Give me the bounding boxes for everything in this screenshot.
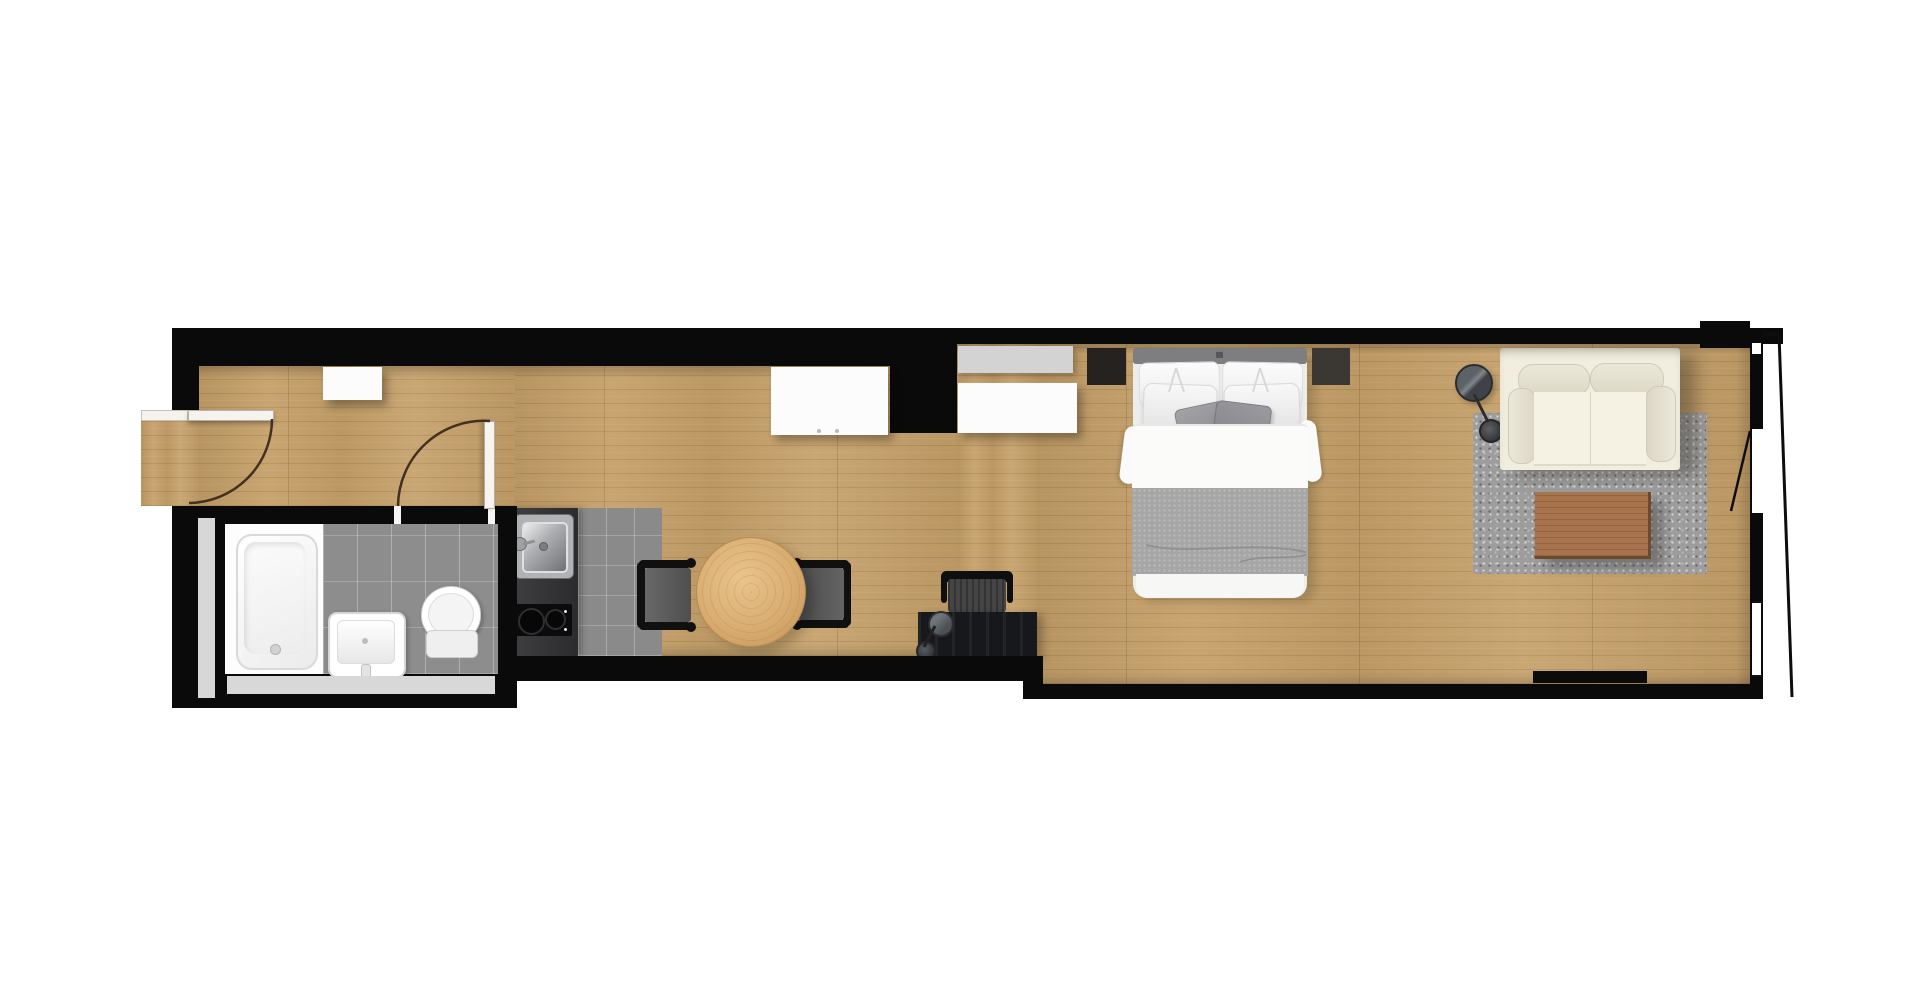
floor-plan-canvas bbox=[0, 0, 1918, 985]
chair-knob bbox=[686, 622, 696, 632]
desk-chair bbox=[941, 571, 1015, 615]
desk-lamp-head bbox=[928, 611, 954, 637]
nightstand-right bbox=[1312, 348, 1350, 385]
balcony-door-opening bbox=[1752, 429, 1763, 513]
double-bed bbox=[1122, 348, 1318, 600]
bathroom-door-jamb-left bbox=[394, 506, 401, 524]
closet-cabinet bbox=[958, 383, 1077, 433]
dresser-handle bbox=[835, 429, 839, 433]
cooktop bbox=[513, 604, 572, 636]
wall-shadow bbox=[1736, 344, 1750, 684]
chair-knob bbox=[686, 558, 696, 568]
chair-backrest bbox=[843, 562, 851, 626]
wall-shelf bbox=[323, 367, 382, 400]
sink-drain bbox=[539, 542, 548, 551]
chair-frame-bottom bbox=[639, 622, 691, 630]
table-grain bbox=[697, 538, 805, 646]
chair-armrest-right bbox=[1007, 575, 1013, 603]
floor-lamp-shade bbox=[1455, 364, 1493, 402]
coffee-table bbox=[1535, 492, 1651, 559]
sofa-armrest-left bbox=[1508, 388, 1536, 464]
window-slot-top bbox=[1752, 343, 1761, 354]
round-dining-table bbox=[696, 537, 806, 647]
nightstand-left bbox=[1087, 348, 1126, 385]
entry-threshold bbox=[141, 410, 188, 421]
balcony-edge-line bbox=[1779, 334, 1792, 697]
bathtub-drain bbox=[270, 644, 281, 655]
wall-top-right-pier bbox=[1700, 321, 1750, 348]
chair-frame-top bbox=[639, 560, 691, 568]
washbasin-drain bbox=[362, 638, 368, 644]
kitchen-sink bbox=[514, 514, 574, 579]
bathtub bbox=[236, 534, 318, 670]
sofa-armrest-right bbox=[1646, 386, 1676, 462]
cooktop-knob bbox=[564, 610, 567, 613]
dresser bbox=[771, 367, 888, 435]
wall-top-right bbox=[957, 328, 1783, 344]
wall-left bbox=[172, 328, 199, 412]
window-right bbox=[1752, 601, 1761, 677]
wall-bottom-left bbox=[502, 656, 1037, 681]
bathroom-bottom-ledge bbox=[227, 676, 495, 694]
bathroom-block bbox=[172, 506, 517, 708]
entry-door-leaf bbox=[188, 410, 274, 421]
sofa bbox=[1500, 348, 1680, 470]
sofa-seat-split bbox=[1590, 392, 1591, 464]
wall-bottom-right bbox=[1037, 684, 1763, 699]
bathroom-door-leaf bbox=[484, 421, 495, 509]
cooktop-knob bbox=[564, 628, 567, 631]
chair-armrest-left bbox=[941, 575, 947, 603]
chair-seat bbox=[645, 568, 691, 622]
burner-right bbox=[545, 609, 566, 630]
closet-shelf bbox=[958, 346, 1073, 373]
dining-chair-left bbox=[637, 556, 697, 634]
washbasin bbox=[328, 612, 406, 678]
chair-seat bbox=[948, 579, 1006, 614]
radiator bbox=[1533, 671, 1647, 683]
bathtub-basin bbox=[244, 542, 306, 654]
burner-left bbox=[518, 608, 545, 635]
sofa-seat bbox=[1534, 392, 1646, 466]
dresser-handle bbox=[817, 429, 821, 433]
blanket bbox=[1132, 488, 1308, 576]
wardrobe-alcove bbox=[890, 328, 957, 433]
chair-frame-top bbox=[797, 560, 849, 568]
headboard-notch bbox=[1216, 352, 1223, 358]
duvet bbox=[1132, 424, 1308, 492]
chair-frame-bottom bbox=[797, 620, 849, 628]
chair-backrest bbox=[637, 562, 645, 628]
bathroom-side-ledge bbox=[198, 518, 215, 698]
sheet-fold bbox=[1136, 574, 1304, 598]
wall-top-left bbox=[172, 328, 890, 366]
floor-entry-landing bbox=[141, 419, 199, 506]
toilet-cistern bbox=[426, 630, 478, 658]
